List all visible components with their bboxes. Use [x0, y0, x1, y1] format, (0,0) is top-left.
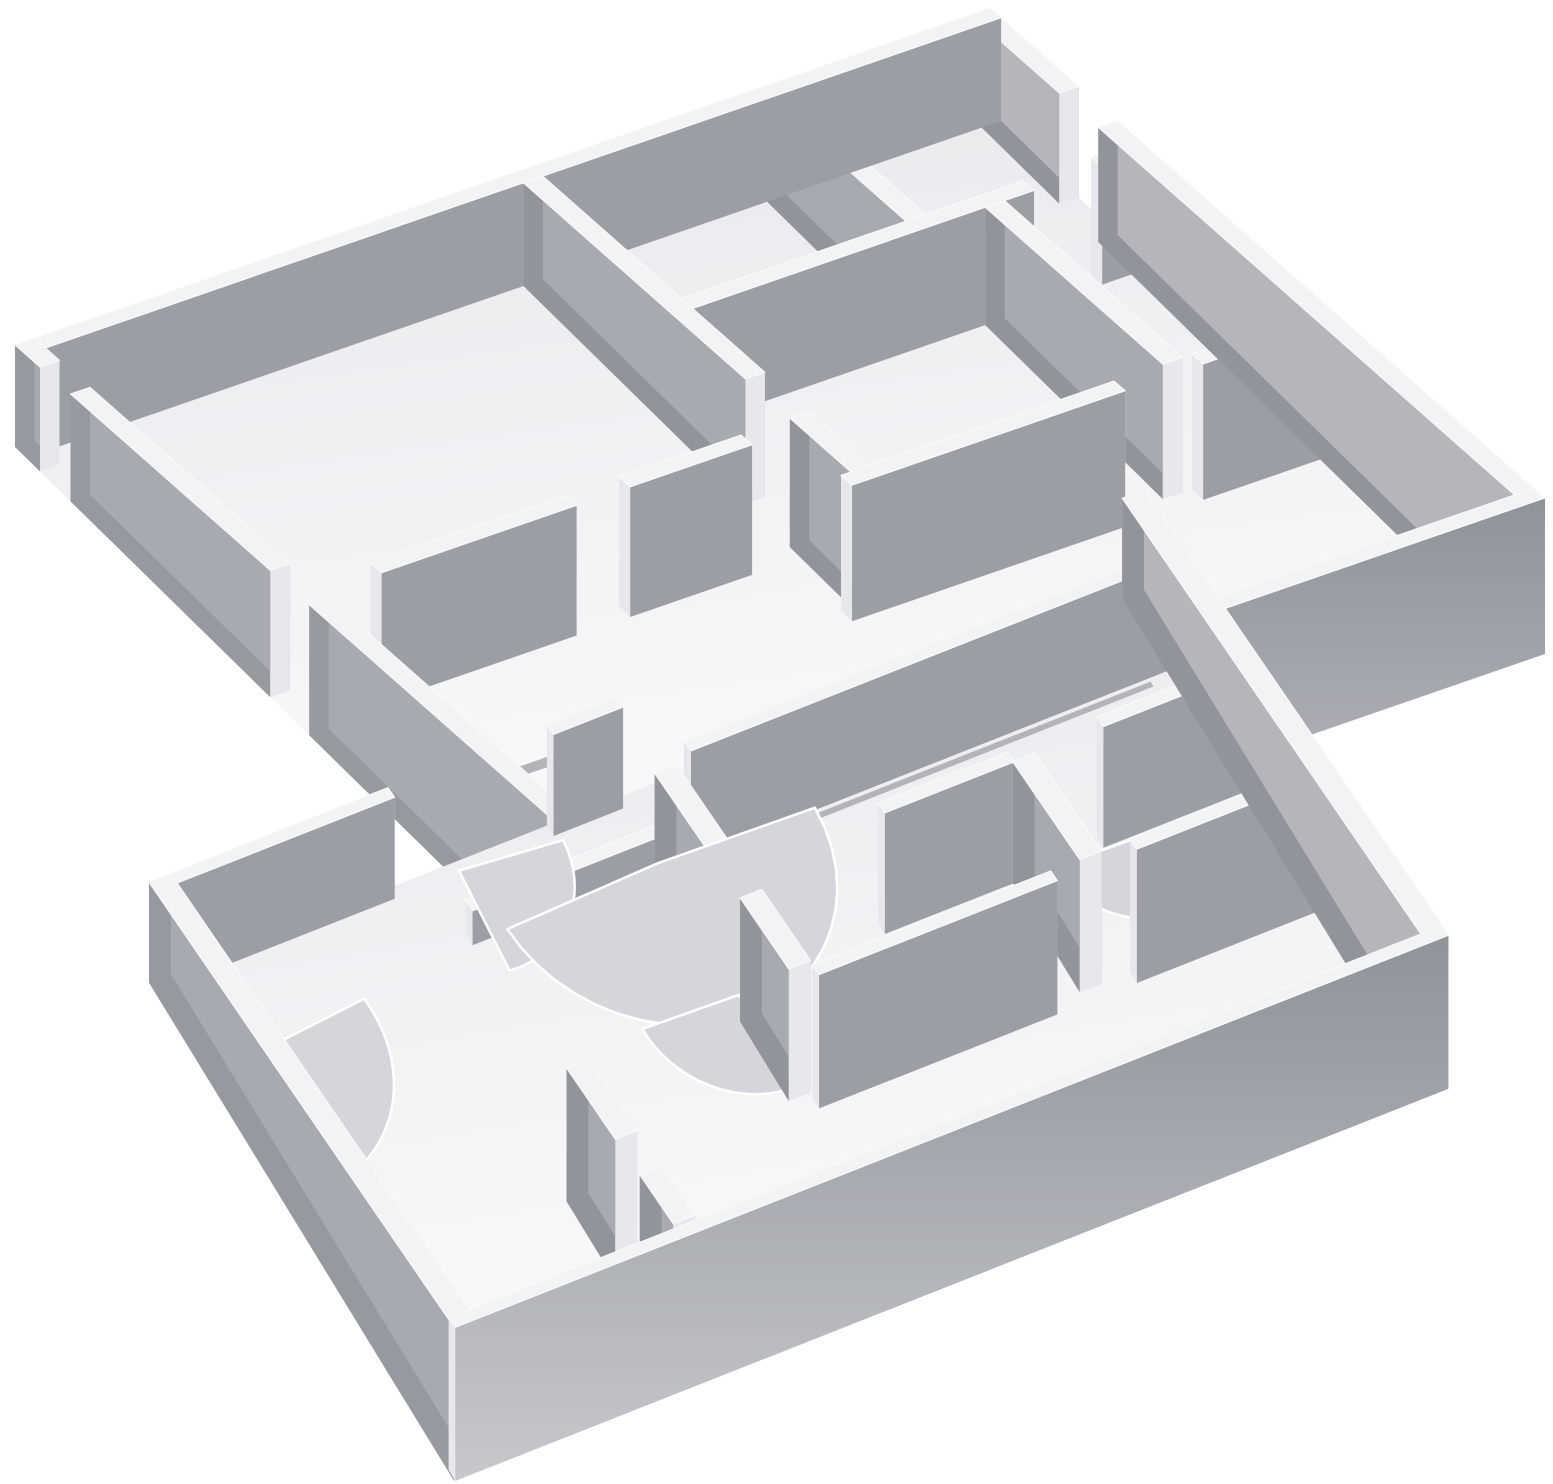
upper-partition-right-south-face — [1163, 357, 1183, 499]
lower-right-cross-wall-west-face — [1097, 717, 1104, 848]
render-viewport — [0, 0, 1553, 1484]
lower-front-partition-west-face — [812, 965, 819, 1109]
lower-right-room-wall-south-face — [1080, 851, 1102, 992]
lower-hall-partition-south-face — [789, 960, 811, 1101]
upper-front-partition-west-face — [841, 475, 852, 621]
upper-sw-perimeter-wall-segment — [15, 338, 60, 471]
floor-plan-3d-render — [0, 0, 1553, 1484]
lower-front-partition-west-face — [1130, 839, 1137, 983]
upper-ne-perimeter-wall-south-face — [1059, 86, 1079, 203]
lower-right-cross-wall-west-face — [878, 803, 885, 934]
upper-entry-wall-west-face — [619, 477, 630, 617]
upper-front-partition-west-face — [1192, 354, 1203, 500]
upper-sw-perimeter-wall-south-face — [40, 360, 60, 471]
lower-se-perimeter-wall-west-face — [449, 1318, 456, 1481]
lower-nw-perimeter-wall-west-face — [547, 725, 554, 836]
upper-sw-perimeter-wall-south-face — [270, 564, 290, 698]
